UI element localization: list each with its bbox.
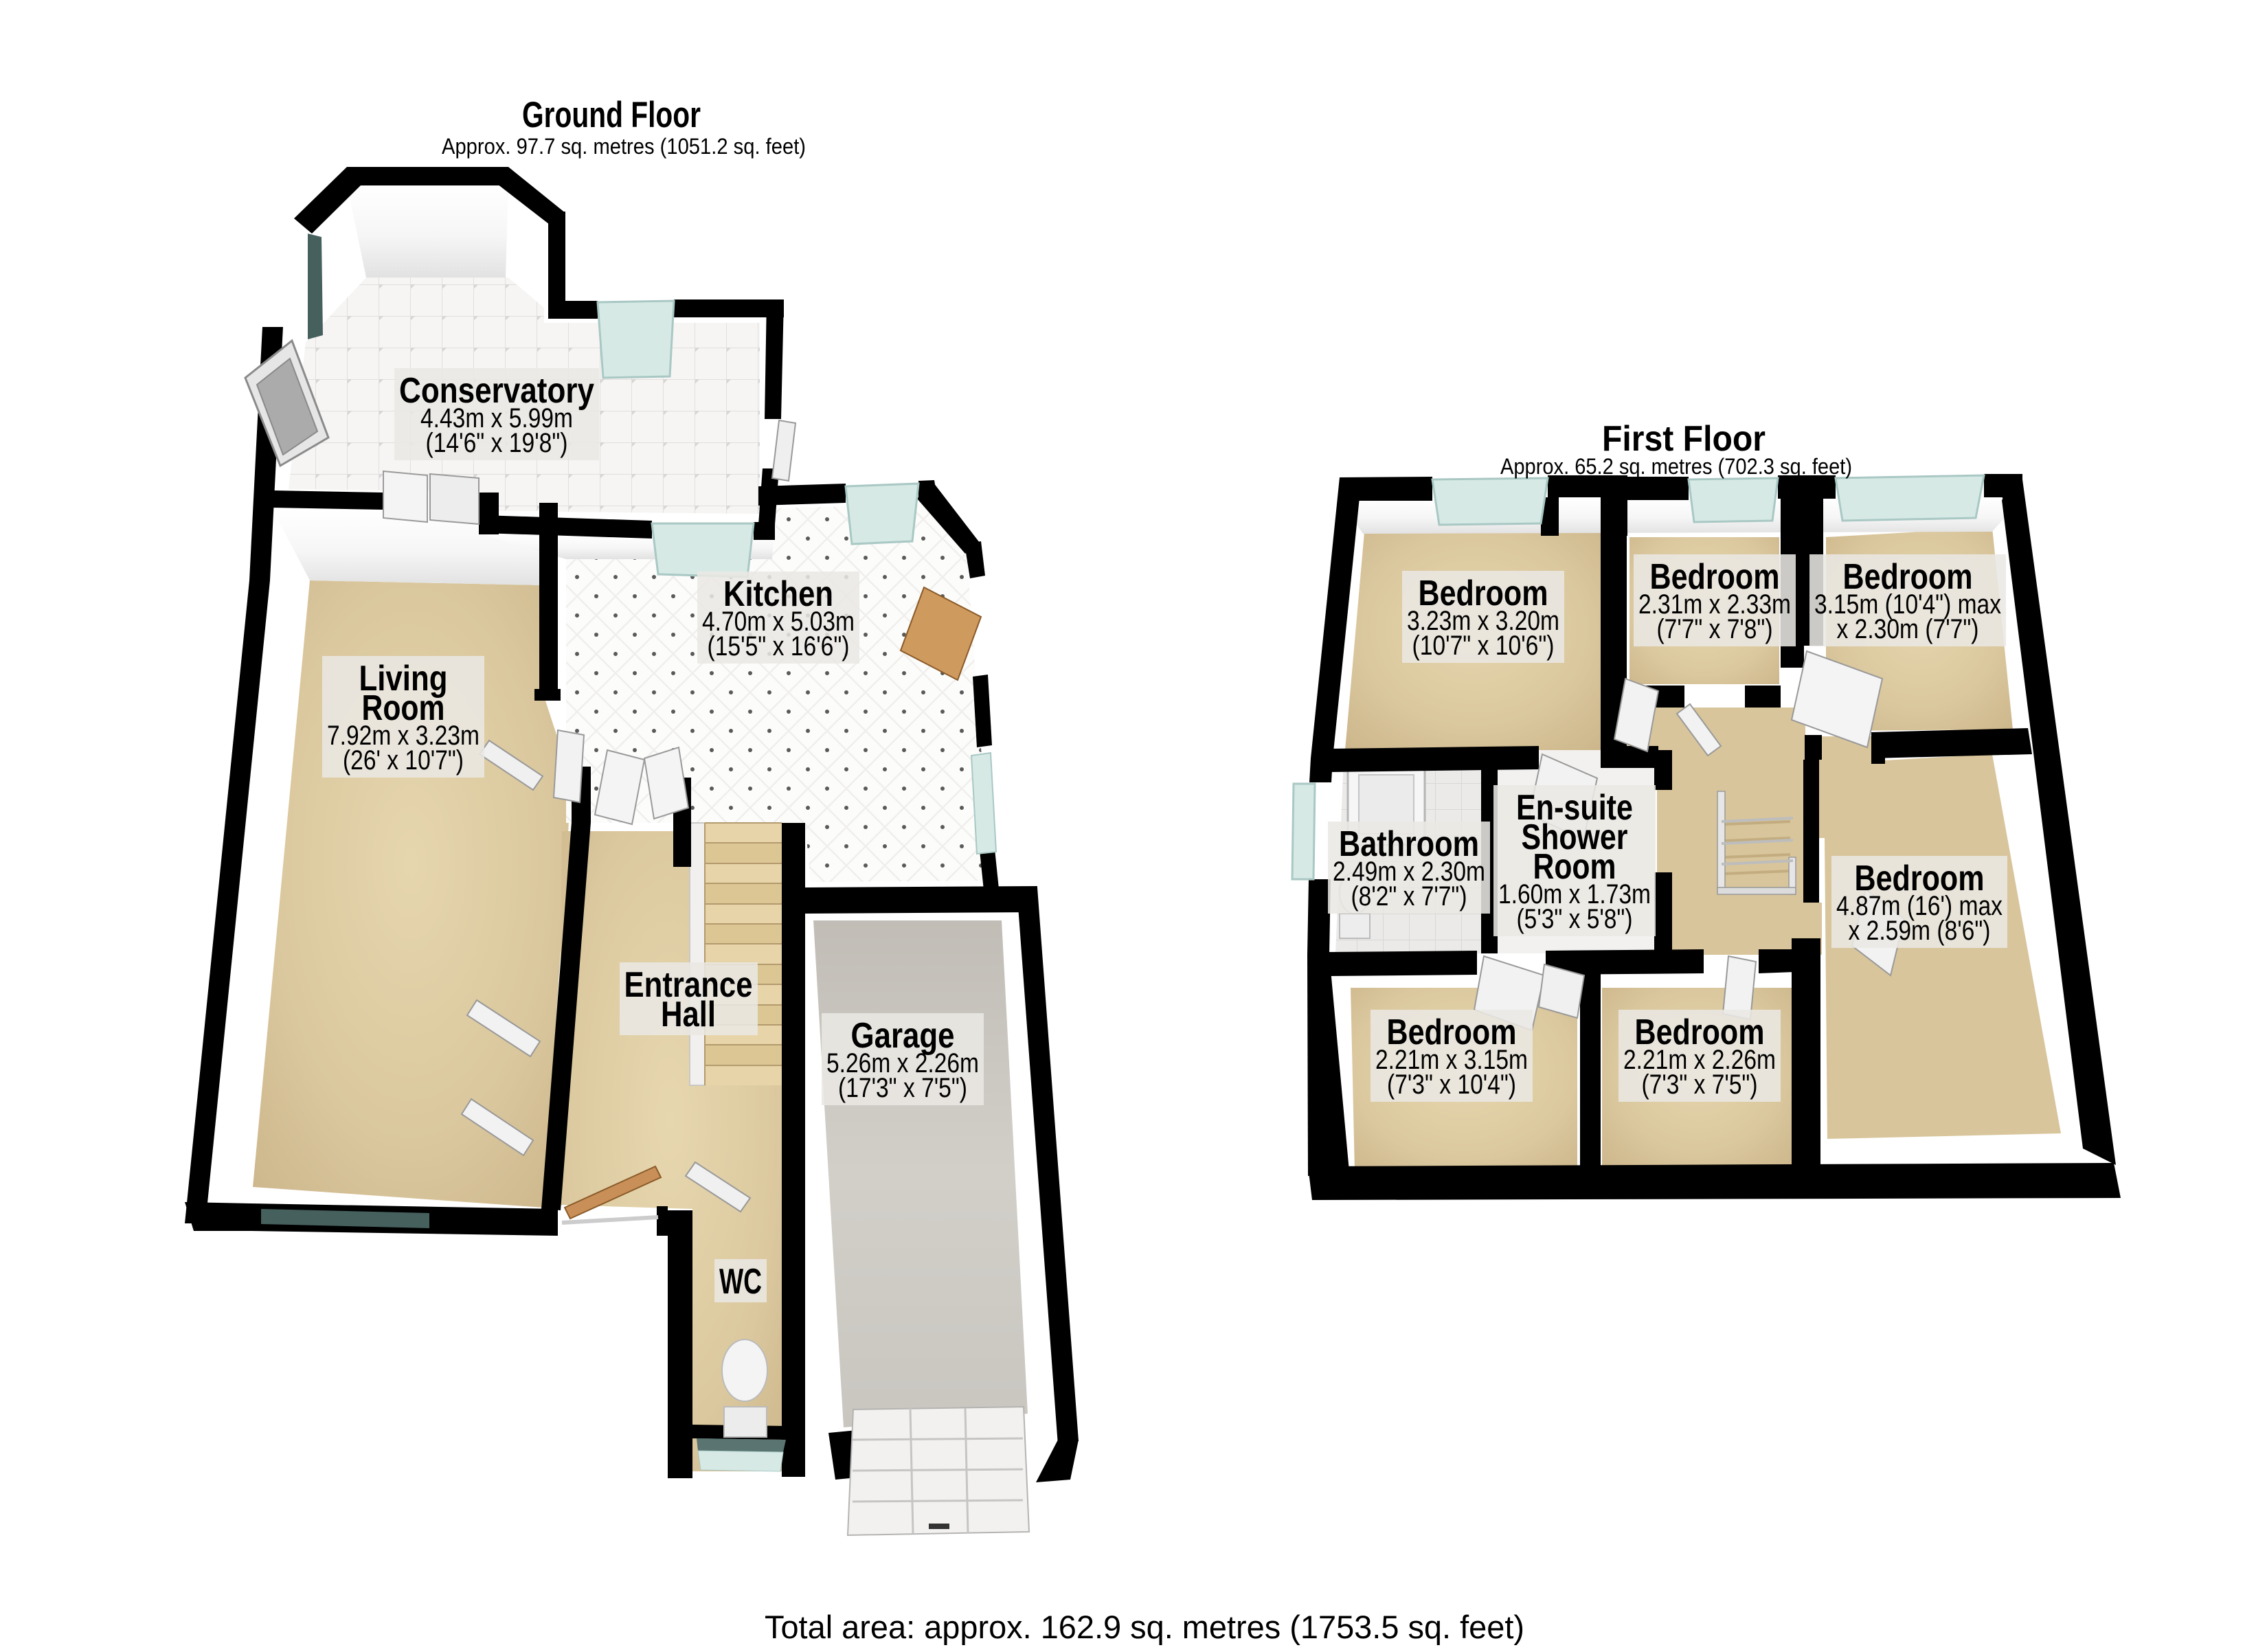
svg-text:First Floor: First Floor xyxy=(1602,419,1766,459)
svg-text:(7'7" x 7'8"): (7'7" x 7'8") xyxy=(1657,614,1773,644)
svg-text:(15'5" x 16'6"): (15'5" x 16'6") xyxy=(708,631,850,661)
svg-text:(14'6" x 19'8"): (14'6" x 19'8") xyxy=(426,428,568,458)
svg-text:WC: WC xyxy=(719,1262,762,1302)
svg-text:Total area: approx. 162.9 sq.: Total area: approx. 162.9 sq. metres (17… xyxy=(765,1609,1524,1645)
svg-text:(7'3" x 10'4"): (7'3" x 10'4") xyxy=(1387,1070,1516,1100)
svg-text:(26' x 10'7"): (26' x 10'7") xyxy=(343,745,464,776)
svg-text:(17'3" x 7'5"): (17'3" x 7'5") xyxy=(838,1073,967,1103)
svg-text:Approx. 65.2 sq. metres (702.3: Approx. 65.2 sq. metres (702.3 sq. feet) xyxy=(1500,454,1852,479)
svg-text:x 2.30m (7'7"): x 2.30m (7'7") xyxy=(1837,614,1979,644)
svg-text:Approx. 97.7 sq. metres (1051.: Approx. 97.7 sq. metres (1051.2 sq. feet… xyxy=(442,134,806,159)
svg-text:(5'3" x 5'8"): (5'3" x 5'8") xyxy=(1517,904,1633,934)
svg-text:(10'7" x 10'6"): (10'7" x 10'6") xyxy=(1412,631,1555,661)
svg-text:(7'3" x 7'5"): (7'3" x 7'5") xyxy=(1642,1070,1758,1100)
svg-text:Ground Floor: Ground Floor xyxy=(522,95,701,135)
svg-text:x 2.59m (8'6"): x 2.59m (8'6") xyxy=(1849,916,1991,946)
svg-text:(8'2" x 7'7"): (8'2" x 7'7") xyxy=(1351,881,1467,912)
svg-text:Hall: Hall xyxy=(661,995,716,1034)
